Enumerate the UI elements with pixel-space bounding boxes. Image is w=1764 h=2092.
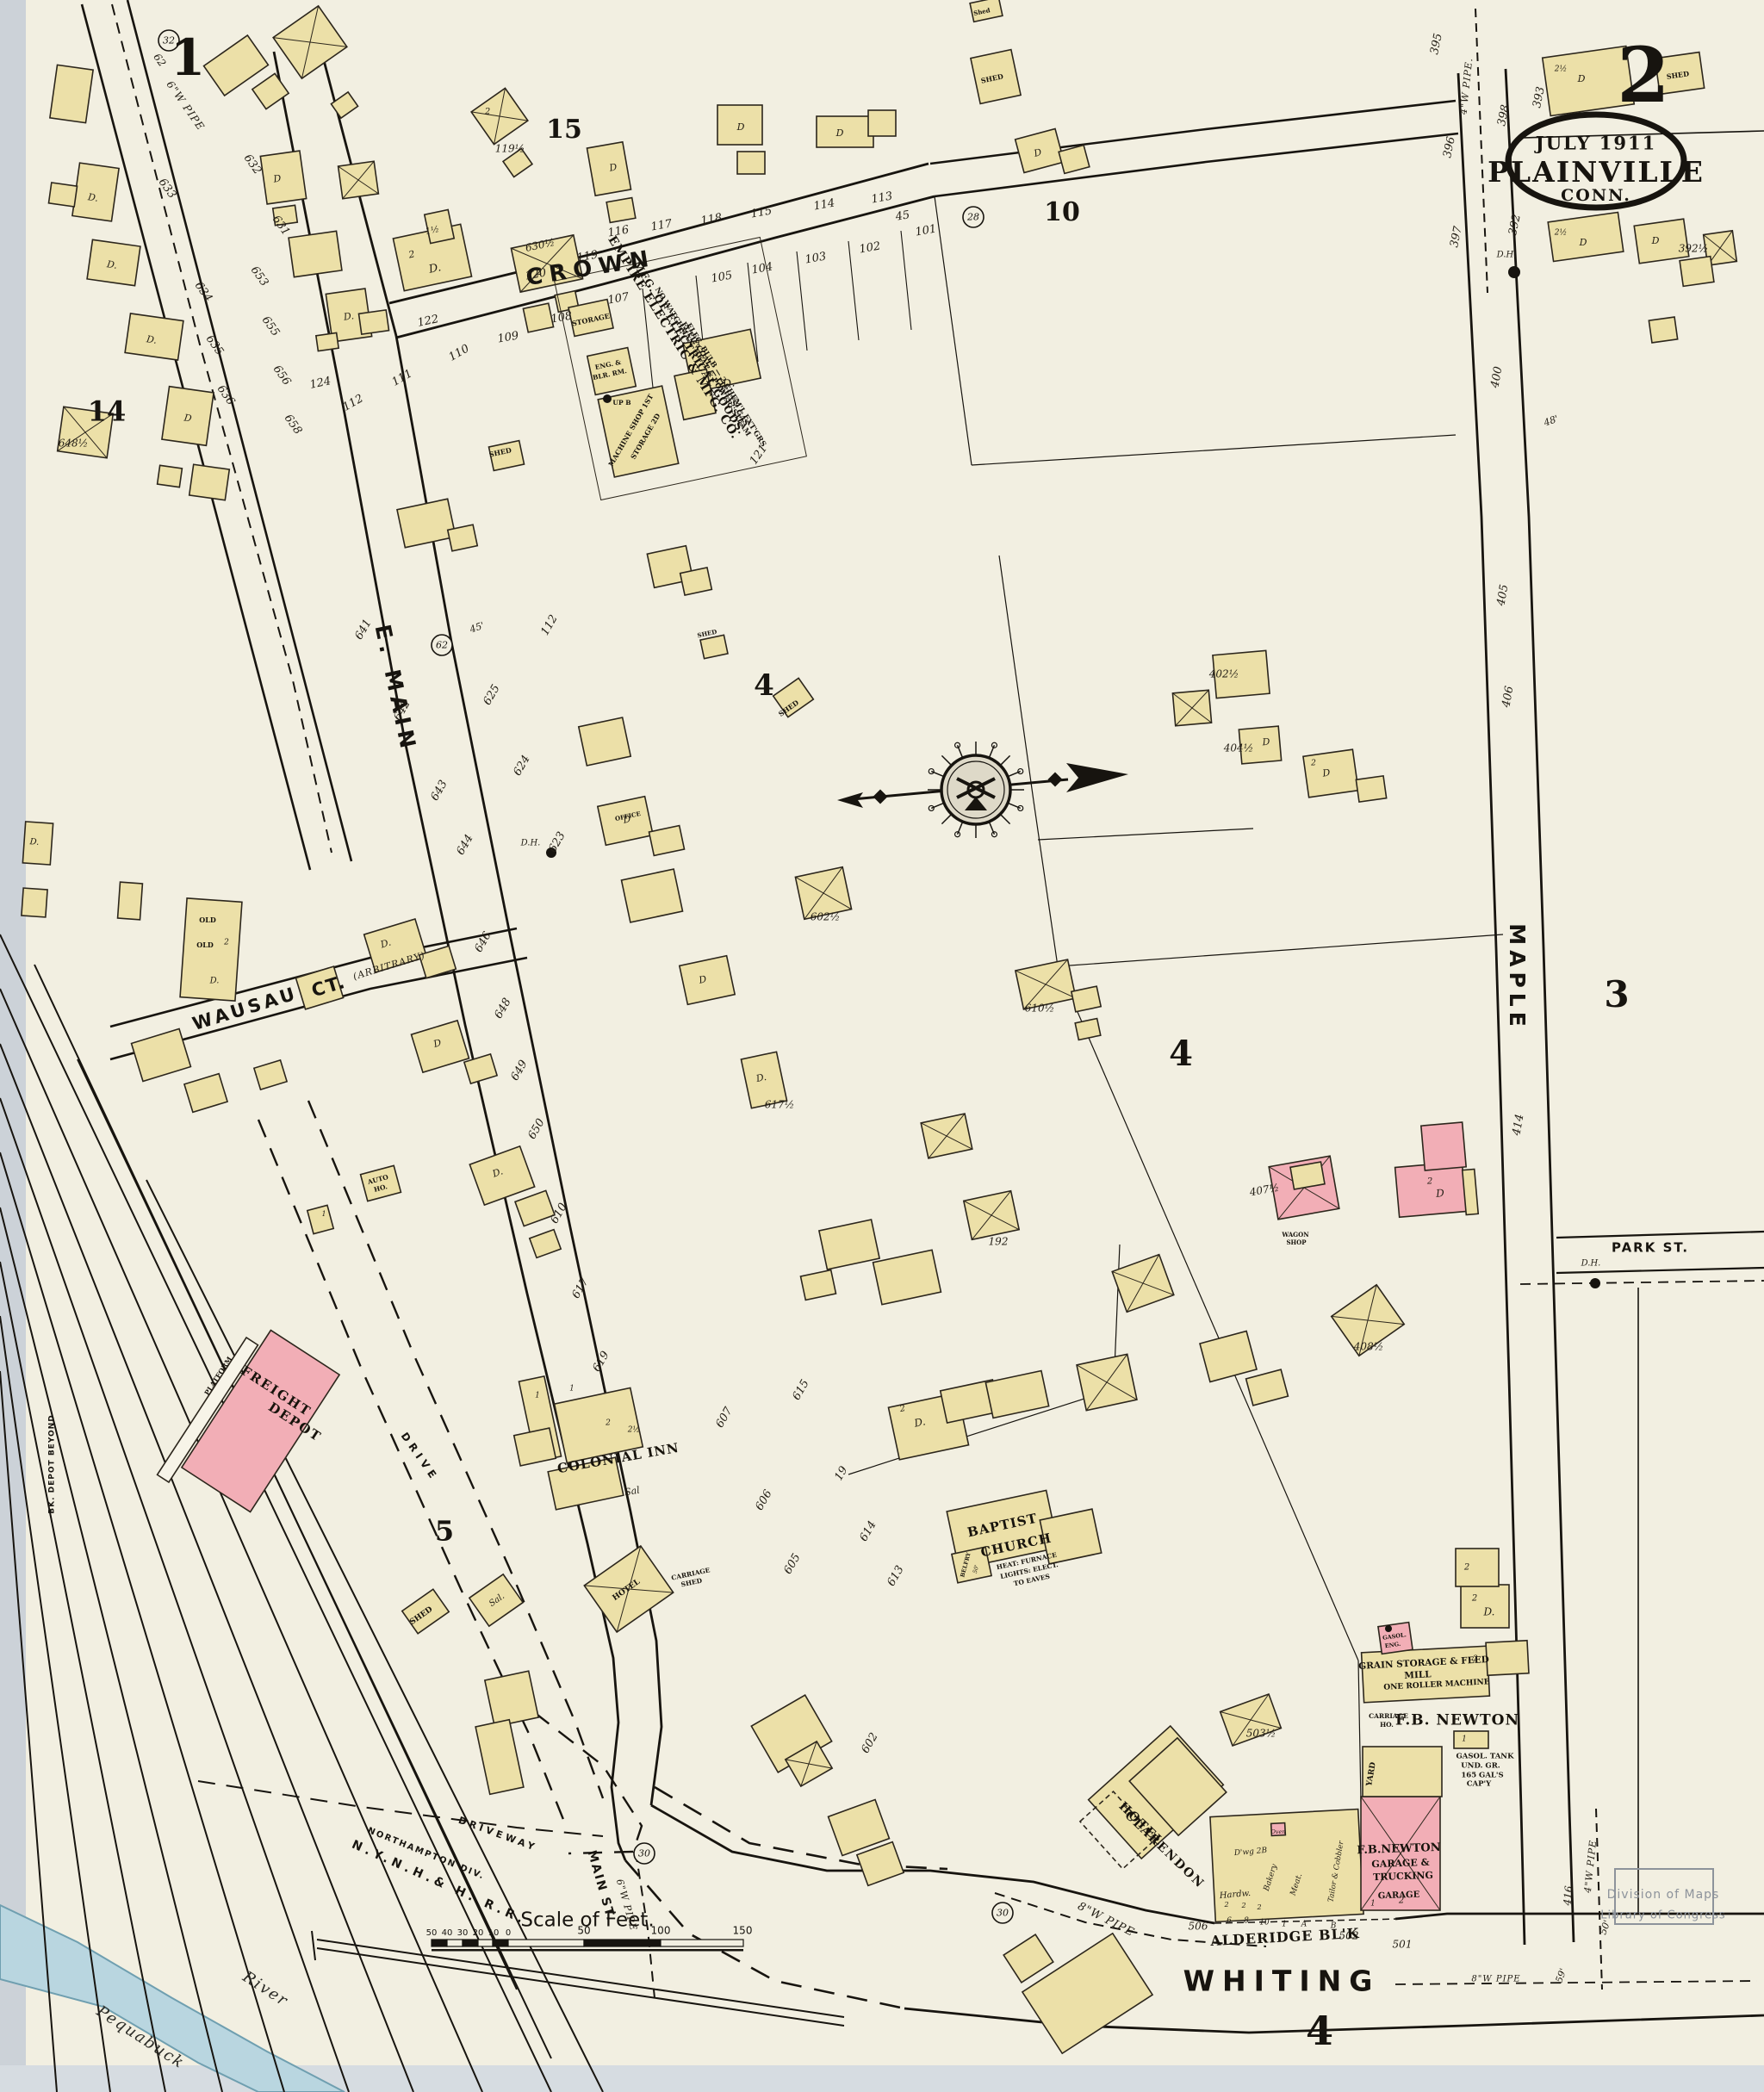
map-label: 10 — [1044, 197, 1080, 227]
map-label: 2 — [1240, 1902, 1245, 1909]
map-label: 1 — [1462, 1735, 1467, 1744]
map-label: HO. — [1380, 1721, 1394, 1729]
building — [1649, 317, 1677, 343]
map-label: 1 — [535, 1392, 540, 1400]
map-label: 14 — [88, 395, 127, 428]
map-label: D.H. — [1496, 251, 1517, 260]
building-outline — [868, 110, 896, 136]
map-label: D — [736, 121, 745, 133]
building-outline — [1649, 317, 1677, 343]
map-label: 40 — [442, 1928, 453, 1938]
map-label: 503½ — [1246, 1728, 1276, 1740]
dh-dot — [1385, 1625, 1392, 1632]
building — [1486, 1641, 1529, 1675]
map-label: D — [1435, 1187, 1445, 1200]
building-outline — [1071, 986, 1101, 1012]
map-label: 20 — [473, 1928, 484, 1938]
map-label: 10 — [488, 1928, 500, 1938]
map-label: PLAINVILLE — [1488, 155, 1705, 189]
map-label: D. — [209, 977, 220, 986]
map-label: 602½ — [811, 911, 841, 923]
map-label: 1 — [321, 1210, 326, 1218]
map-label: 6 — [1227, 1917, 1232, 1926]
map-label: 4 — [1169, 1034, 1193, 1074]
map-label: 648½ — [59, 438, 89, 450]
map-label: D — [272, 172, 283, 184]
building — [606, 198, 636, 223]
map-label: 165 GAL'S — [1461, 1772, 1503, 1780]
map-label: Division of Maps — [1607, 1888, 1720, 1902]
map-label: WHITING — [1183, 1965, 1381, 1998]
map-label: 1 — [1282, 1921, 1287, 1929]
building-outline — [737, 152, 765, 174]
map-label: 2 — [1471, 1594, 1477, 1604]
map-label: D. — [342, 310, 355, 323]
scale-segment — [447, 1940, 463, 1946]
building-outline — [485, 1671, 538, 1727]
map-label: 2 — [605, 1419, 611, 1428]
map-label: 416 — [1561, 1885, 1575, 1907]
map-label: 4 — [754, 668, 774, 703]
building — [817, 116, 873, 147]
map-label: WAGON — [1281, 1231, 1309, 1238]
map-label: 2 — [484, 108, 490, 117]
building-outline — [289, 231, 342, 276]
building — [680, 568, 712, 595]
scale-segment — [584, 1940, 661, 1946]
building — [868, 110, 896, 136]
map-label: 192 — [989, 1236, 1009, 1248]
map-label: TRUCKING — [1373, 1870, 1433, 1883]
map-label: 8 — [1244, 1917, 1249, 1926]
building-outline — [514, 1428, 556, 1466]
map-label: MILL — [1404, 1669, 1432, 1681]
building — [523, 303, 553, 332]
map-label: D. — [721, 376, 736, 392]
building — [1456, 1549, 1499, 1586]
map-sheet: 3262283030CROWNE. MAINMAPLEWAUSAUCT.(ARB… — [0, 0, 1764, 2092]
map-label: MAPLE — [1505, 923, 1530, 1032]
map-label: 30 — [457, 1928, 469, 1938]
map-label: D. — [755, 1071, 767, 1084]
scale-segment — [493, 1940, 508, 1946]
building-outline — [579, 717, 630, 766]
building-outline — [1680, 257, 1714, 287]
map-label: UND. GR. — [1461, 1762, 1500, 1771]
building-outline — [48, 183, 77, 207]
building — [1077, 1354, 1137, 1410]
building-outline — [448, 525, 478, 551]
building — [50, 65, 93, 122]
scan-edge-left — [0, 0, 26, 2092]
building — [1356, 776, 1386, 802]
building-outline — [1456, 1549, 1499, 1586]
map-label: 2 — [1472, 1655, 1478, 1664]
scale-segment — [478, 1940, 493, 1946]
map-label: PARK ST. — [1612, 1240, 1689, 1256]
map-label: D. — [912, 1415, 927, 1430]
hydrant-number: 28 — [966, 212, 979, 223]
map-label: 45 — [894, 208, 911, 224]
building — [1071, 986, 1101, 1012]
map-label: 50 — [577, 1925, 590, 1937]
building — [339, 161, 379, 198]
building-outline — [316, 332, 339, 351]
map-label: 119½ — [495, 143, 525, 155]
map-label: 1 — [1370, 1900, 1376, 1909]
building — [700, 635, 728, 658]
scale-segment — [463, 1940, 478, 1946]
map-label: 8"W PIPE — [1471, 1975, 1520, 1984]
map-label: 4 — [1306, 2008, 1333, 2054]
building — [189, 464, 230, 500]
map-label: D. — [86, 191, 99, 204]
map-label: BK. DEPOT BEYOND — [48, 1414, 57, 1513]
scale-segment — [661, 1940, 743, 1946]
building-outline — [1290, 1162, 1325, 1189]
map-label: D — [835, 127, 844, 139]
map-label: D.H. — [520, 839, 541, 848]
map-label: GASOL. TANK — [1457, 1753, 1515, 1761]
map-label: D — [1579, 237, 1587, 248]
building-outline — [606, 198, 636, 223]
map-label: 2 — [1426, 1177, 1432, 1187]
building-outline — [358, 310, 388, 334]
building — [1454, 1731, 1488, 1748]
map-label: 501 — [1393, 1939, 1413, 1951]
building — [289, 231, 342, 276]
map-label: 392½ — [1679, 243, 1709, 255]
building — [1290, 1162, 1325, 1189]
map-label: 1 — [569, 1385, 575, 1394]
building-outline — [1075, 1019, 1101, 1040]
map-label: 408½ — [1353, 1341, 1384, 1353]
map-label: OLD — [199, 916, 216, 924]
map-label: CAP'Y — [1467, 1780, 1492, 1789]
map-label: 2 — [1256, 1903, 1261, 1911]
building — [579, 717, 630, 766]
scale-underline — [432, 1949, 743, 1952]
dh-dot — [603, 394, 612, 403]
building-outline — [523, 303, 553, 332]
map-label: 150 — [733, 1925, 753, 1937]
hydrant-number: 30 — [997, 1908, 1009, 1919]
building-outline — [1486, 1641, 1529, 1675]
map-label: Oven — [1270, 1828, 1285, 1835]
building-outline — [1454, 1731, 1488, 1748]
building — [1634, 219, 1689, 264]
hydrant-number: 30 — [638, 1848, 650, 1859]
map-label: SHOP — [1286, 1238, 1307, 1246]
building-outline — [680, 568, 712, 595]
building — [118, 882, 143, 920]
map-label: 0 — [506, 1928, 511, 1938]
building — [1075, 1019, 1101, 1040]
building — [1303, 749, 1358, 798]
building-outline — [1421, 1122, 1466, 1170]
map-label: D. — [1482, 1606, 1494, 1618]
map-label: Library of Congress — [1600, 1909, 1725, 1922]
map-label: OLD — [196, 940, 214, 949]
building — [358, 310, 388, 334]
map-label: D — [183, 412, 193, 424]
dh-dot — [1508, 266, 1520, 278]
map-label: 1 — [171, 28, 205, 87]
map-label: 100 — [651, 1925, 671, 1937]
hydrant-number: 62 — [436, 640, 448, 651]
building — [1680, 257, 1714, 287]
map-label: 2½ — [627, 1425, 640, 1435]
map-label: 617½ — [765, 1099, 795, 1111]
building-outline — [50, 65, 93, 122]
map-label: 10 — [1259, 1919, 1270, 1927]
map-label: 2 — [1617, 30, 1669, 120]
map-label: 2 — [1398, 1896, 1404, 1906]
map-label: UP B — [612, 399, 630, 407]
map-label: D — [1651, 235, 1660, 246]
building — [22, 888, 47, 917]
building-outline — [22, 888, 47, 917]
building-outline — [700, 635, 728, 658]
building — [48, 183, 77, 207]
building — [514, 1428, 556, 1466]
map-label: D.H. — [1581, 1259, 1601, 1269]
map-label: 2 — [1463, 1563, 1469, 1573]
map-label: 50 — [426, 1928, 438, 1938]
scale-segment — [508, 1940, 584, 1946]
map-label: 402½ — [1208, 668, 1239, 680]
map-label: D. — [28, 837, 40, 847]
map-label: 2 — [1310, 760, 1316, 768]
building-outline — [1356, 776, 1386, 802]
map-label: 506 — [1189, 1921, 1208, 1933]
map-label: 5 — [435, 1515, 454, 1548]
map-label: JULY 1911 — [1534, 133, 1656, 154]
map-label: D — [1577, 73, 1586, 84]
building — [1421, 1122, 1466, 1170]
map-label: 15 — [546, 115, 582, 145]
building-outline — [118, 882, 143, 920]
map-label: 2½ — [1554, 228, 1567, 238]
building-outline — [158, 465, 183, 487]
building — [158, 465, 183, 487]
map-label: D. — [145, 333, 158, 346]
scale-segment — [432, 1940, 447, 1946]
building — [316, 332, 339, 351]
map-label: 3 — [1604, 973, 1629, 1015]
building — [485, 1671, 538, 1727]
map-label: 404½ — [1223, 742, 1254, 754]
building — [1172, 690, 1211, 726]
map-label: 2½ — [1554, 65, 1567, 74]
map-label: 610½ — [1025, 1003, 1055, 1015]
building-outline — [1303, 749, 1358, 798]
map-label: D — [1321, 767, 1332, 779]
map-label: D. — [427, 261, 443, 276]
scale-bar — [432, 1940, 743, 1952]
map-label: GARAGE & — [1371, 1857, 1430, 1870]
building — [448, 525, 478, 551]
building-outline — [1634, 219, 1689, 264]
building — [260, 151, 306, 204]
dh-dot — [1590, 1278, 1600, 1288]
sanborn-map: 3262283030CROWNE. MAINMAPLEWAUSAUCT.(ARB… — [0, 0, 1764, 2092]
building — [737, 152, 765, 174]
map-label: 2 — [223, 939, 229, 947]
map-label: F.B. NEWTON — [1395, 1712, 1519, 1729]
building-outline — [260, 151, 306, 204]
building-outline — [817, 116, 873, 147]
building-outline — [189, 464, 230, 500]
map-label: 2 — [1223, 1901, 1228, 1909]
map-label: CONN. — [1561, 186, 1631, 205]
map-label: D. — [105, 258, 118, 271]
map-label: D — [1261, 736, 1270, 748]
